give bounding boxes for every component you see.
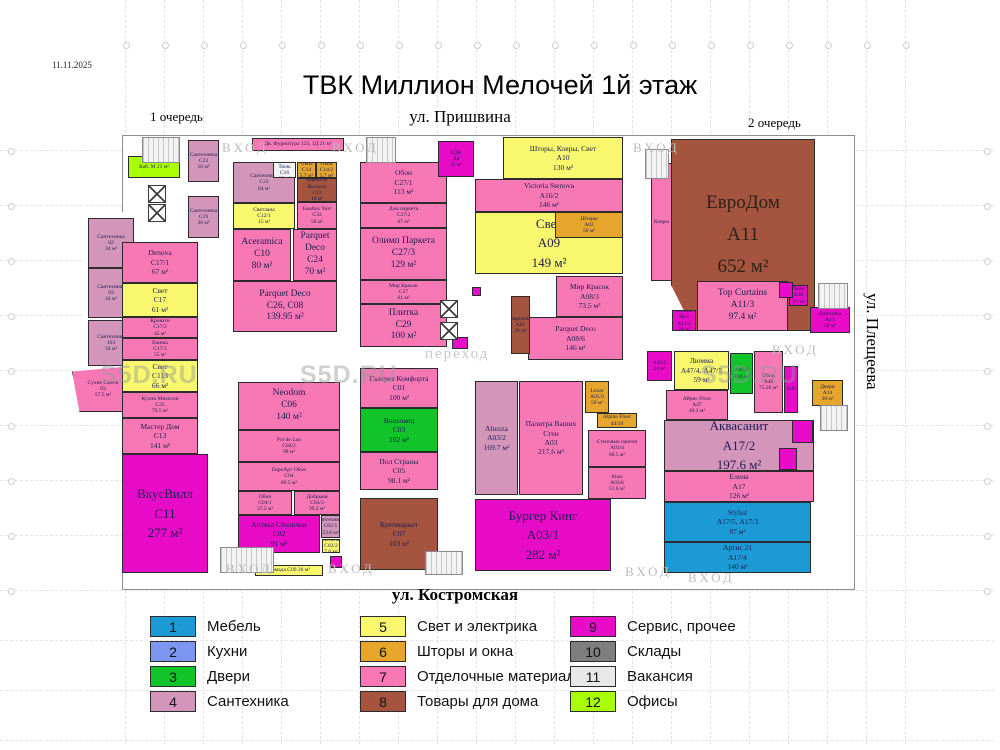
unit-С33: Бамбук УютС3358 м² <box>297 202 337 229</box>
unit-С16: Жал. ТюльС1612 м² <box>273 162 296 178</box>
legend-swatch-12: 12 <box>570 691 616 712</box>
unit-С04: ЕвроАрт ОбоиС0480.5 м² <box>238 462 340 491</box>
unit-label: А16/2 <box>540 191 559 200</box>
unit-label: А17/4 <box>728 553 747 562</box>
unit-label: 34 м² <box>105 346 117 352</box>
unit-С17/1: DenovaС17/167 м² <box>122 242 198 283</box>
unit-А03/2: AltezzaА03/2169.7 м² <box>475 381 518 495</box>
legend-swatch-5: 5 <box>360 616 406 637</box>
unit-label: 652 м² <box>718 251 769 283</box>
unit-label: 113 м² <box>394 187 414 196</box>
unit-label: Дв. Фурнитура 123, 1Д 21 м² <box>264 141 331 147</box>
unit-block <box>779 282 793 298</box>
phase-1-label: 1 очередь <box>150 109 203 125</box>
legend-label-2: Кухни <box>207 643 247 660</box>
unit-label: 139.95 м² <box>266 312 303 324</box>
unit-label: 57.5 м² <box>95 392 111 398</box>
unit-label: 98.1 м² <box>388 476 410 485</box>
legend-swatch-9: 9 <box>570 616 616 637</box>
street-label-right: ул. Плещеева <box>862 293 882 390</box>
unit-label: 45 м² <box>154 331 166 337</box>
unit-label: С29 <box>396 320 412 332</box>
unit-label: 50 м² <box>591 400 603 406</box>
legend-label-10: Склады <box>627 643 681 660</box>
unit-А02: ШторыА0250 м² <box>555 212 623 238</box>
unit-С27/1: ОбоиС27/1113 м² <box>360 162 447 203</box>
unit-label: 282 м² <box>526 545 561 565</box>
unit-label: 16 м² <box>197 164 209 170</box>
unit-label: 60.5 м² <box>609 452 625 458</box>
entrance-label: ВХОД <box>625 564 672 580</box>
unit-label: 129 м² <box>391 260 417 272</box>
unit-label: Палитра Ваших Стен <box>520 419 582 438</box>
unit-С10: AceramicaС1080 м² <box>233 229 291 281</box>
unit-24 м²: А43/524 м² <box>647 351 672 381</box>
legend-label-12: Офисы <box>627 693 678 710</box>
unit-label: Свет <box>152 286 167 295</box>
unit-С02/2: ЛенельС02/27.6 м² <box>322 539 340 553</box>
unit-С11: ВкусВиллС11277 м² <box>122 454 208 573</box>
unit-А47: Айрис FloorА4749.3 м² <box>666 390 728 420</box>
legend-label-3: Двери <box>207 668 250 685</box>
legend-label-9: Сервис, прочее <box>627 618 736 635</box>
unit-label: 87 м² <box>729 527 745 536</box>
unit-label: Каб. М 21 м² <box>139 164 169 170</box>
unit-label: 97.4 м² <box>729 312 757 324</box>
stairs <box>820 405 848 431</box>
unit-С27/2: Дом паркетаС27/267 м² <box>360 203 447 228</box>
unit-label: С10 <box>254 249 270 261</box>
unit-label: 149 м² <box>532 253 567 273</box>
unit-label: 169.7 м² <box>484 443 510 452</box>
unit-label: 197.6 м² <box>717 455 762 471</box>
unit-С04/2: Pol de LuxС04/298 м² <box>238 430 340 462</box>
unit-С17/2: КроватиС17/245 м² <box>122 317 198 338</box>
unit-label: 141 м² <box>150 441 170 450</box>
unit-label: Top Curtains <box>718 288 767 300</box>
unit-label: Жал. Тюль <box>274 162 295 170</box>
unit-label: Карнизы Жалюзи <box>298 178 336 190</box>
unit-А16/2: Victoria StenovaА16/2146 м² <box>475 179 623 212</box>
unit-А11/2: Гибкий ПолА11/228 м² <box>672 310 696 331</box>
unit-label: 50 м² <box>583 228 595 234</box>
unit-label: 67 м² <box>152 267 168 276</box>
unit-С19: СантехникаС1936 м² <box>188 196 219 238</box>
unit-block <box>472 287 481 296</box>
entrance-label: ВХОД <box>772 342 819 358</box>
unit-label: Parquet Deco <box>259 289 310 301</box>
unit-label: 26 м² <box>514 328 526 334</box>
unit-label: Мастер Дом <box>140 422 179 431</box>
watermark: S5D.RU <box>100 361 198 390</box>
elevator <box>440 300 458 318</box>
unit-label: А17 <box>733 482 746 491</box>
stairs <box>142 137 180 163</box>
unit-label: 34 м² <box>105 296 117 302</box>
unit-А11/3: Top CurtainsА11/397.4 м² <box>697 281 788 331</box>
unit-label: 64 м² <box>258 186 270 192</box>
unit-label: Altezza <box>485 424 508 433</box>
unit-label: 146 м² <box>539 200 559 209</box>
legend-label-8: Товары для дома <box>417 693 538 710</box>
legend-swatch-7: 7 <box>360 666 406 687</box>
unit-label: ВкусВилл <box>137 484 193 504</box>
legend-label-5: Свет и электрика <box>417 618 537 635</box>
unit-label: 146 м² <box>565 343 585 352</box>
unit-С23: СантехникаС2316 м² <box>188 140 219 182</box>
stairs <box>425 551 463 575</box>
phase-2-label: 2 очередь <box>748 115 801 131</box>
unit-label: 102 м² <box>389 435 409 444</box>
unit-label: 73.5 м² <box>579 301 601 310</box>
unit-С14/2: ОкнаС14/25.7 м² <box>316 162 337 178</box>
unit-label: С05 <box>393 466 406 475</box>
unit-label: Обои <box>395 168 412 177</box>
unit-label: 34 м² <box>105 246 117 252</box>
unit-label: 55 м² <box>154 352 166 358</box>
unit-label: 100 м² <box>391 331 417 343</box>
unit-А17/4: Артис 21А17/4140 м² <box>664 542 811 573</box>
unit-А01: КарнизыА0126 м² <box>511 296 530 354</box>
plan-date: 11.11.2025 <box>52 60 92 70</box>
street-label-bottom: ул. Костромская <box>355 585 555 605</box>
unit-block <box>779 448 797 470</box>
unit-label: 58 м² <box>311 219 323 225</box>
legend-label-6: Шторы и окна <box>417 643 513 660</box>
unit-label: 51.6 м² <box>609 486 625 492</box>
legend-swatch-6: 6 <box>360 641 406 662</box>
unit-label: 44/10 <box>611 421 624 427</box>
unit-С17: СветС1761 м² <box>122 283 198 317</box>
unit-label: Ковры <box>654 219 669 225</box>
unit-label: С24 <box>307 255 323 267</box>
unit-С04/1: ОбоиС04/137.5 м² <box>238 491 292 515</box>
unit-label: Елена <box>730 472 749 481</box>
unit-А14: ДвериА1438 м² <box>812 380 843 406</box>
unit-label: А03 <box>545 438 558 447</box>
elevator <box>440 322 458 340</box>
unit-label: Бургер Кинг <box>509 506 578 526</box>
legend-swatch-3: 3 <box>150 666 196 687</box>
unit-А03/1: Бургер КингА03/1282 м² <box>475 499 611 571</box>
unit-label: 33 м² <box>450 162 462 168</box>
unit-label: 28 м² <box>824 323 836 329</box>
unit-label: Мир Красок <box>570 282 609 291</box>
unit-label: С11 <box>154 504 175 524</box>
unit-label: 15 м² <box>258 219 270 225</box>
unit-label: Крепмаркет <box>380 520 418 529</box>
unit-label: 7.6 м² <box>324 549 337 553</box>
unit-label: С02 <box>273 529 286 538</box>
unit-label: 28 м² <box>678 327 690 331</box>
unit-С14: ОкнаС145.7 м² <box>297 162 316 178</box>
unit-А03/4: Стеновые панелиА03/460.5 м² <box>588 430 646 467</box>
unit-label: А08/6 <box>566 334 585 343</box>
entrance-label: ВХОД <box>688 570 735 586</box>
unit-С25: Кухни МизеллиС2579.5 м² <box>122 392 198 418</box>
unit-label: А03/1 <box>527 525 560 545</box>
unit-label: 49.3 м² <box>689 408 705 414</box>
unit-label: Aceramica <box>241 237 282 249</box>
unit-label: 277 м² <box>148 523 183 543</box>
unit-label: 103 м² <box>389 539 409 548</box>
unit-С29: ПлиткаС29100 м² <box>360 304 447 347</box>
unit-С12/1: СветланаС12/115 м² <box>233 203 295 229</box>
unit-block <box>792 420 813 443</box>
legend-label-7: Отделочные материалы <box>417 668 586 685</box>
unit-label: 126 м² <box>729 491 749 500</box>
unit-label: 80 м² <box>252 261 273 273</box>
unit-label: С26, С08 <box>267 301 303 313</box>
unit-label: Плитка <box>389 308 419 320</box>
unit-label: 80.5 м² <box>281 480 297 486</box>
unit-label: Шторы, Ковры, Свет <box>530 144 597 153</box>
unit-label: 17 м² <box>792 299 804 305</box>
unit-label: 12 м² <box>278 176 290 178</box>
entrance-label: ВХОД <box>222 140 269 156</box>
unit-С04/3: ДобрыняС04/339.2 м² <box>294 491 340 515</box>
unit-label: 61 м² <box>152 305 168 314</box>
elevator <box>148 185 166 203</box>
unit-label: Гибкий Пол <box>673 310 695 321</box>
unit-label: Parquet Deco <box>555 324 596 333</box>
unit-label: 100 м² <box>389 393 409 402</box>
page-title: ТВК Миллион Мелочей 1й этаж <box>0 70 1000 101</box>
entrance-label: ВХОД <box>332 140 379 156</box>
unit-label: Victoria Stenova <box>524 181 574 190</box>
unit-С27/3: Олимп ПаркетаС27/3129 м² <box>360 228 447 280</box>
unit-label: ЕвроДом <box>706 187 780 219</box>
legend-swatch-1: 1 <box>150 616 196 637</box>
unit-А08/6: Parquet DecoА08/6146 м² <box>528 317 623 360</box>
unit-label: 140 м² <box>276 412 302 424</box>
unit-С26, С08: Parquet DecoС26, С08139.95 м² <box>233 281 337 332</box>
unit-label: 98 м² <box>283 449 295 455</box>
unit-А10: Шторы, Ковры, СветА10130 м² <box>503 137 623 179</box>
unit-Ковры: Ковры <box>651 163 672 281</box>
unit-С13: Мастер ДомС13141 м² <box>122 418 198 454</box>
unit-А13: ДомотекаА1328 м² <box>810 307 850 333</box>
legend-label-1: Мебель <box>207 618 261 635</box>
legend-swatch-4: 4 <box>150 691 196 712</box>
entrance-label: ВХОД <box>633 140 680 156</box>
unit-label: С27/3 <box>392 248 415 260</box>
unit-label: С17 <box>154 295 167 304</box>
legend-swatch-8: 8 <box>360 691 406 712</box>
unit-А08/3: Мир КрасокА08/373.5 м² <box>556 276 623 317</box>
unit-С17/3: ВанныС17/355 м² <box>122 338 198 360</box>
floor-plan-page: 11.11.2025 ТВК Миллион Мелочей 1й этаж у… <box>0 0 1000 750</box>
unit-label: 37.5 м² <box>257 506 273 512</box>
unit-label: 70 м² <box>305 267 326 279</box>
unit-44/10: Alpine Floor44/10 <box>597 413 637 428</box>
unit-А17/5, А17/3: StylistА17/5, А17/387 м² <box>664 502 811 542</box>
unit-А17: ЕленаА17126 м² <box>664 471 814 502</box>
elevator <box>148 204 166 222</box>
unit-label: 36 м² <box>197 220 209 226</box>
legend-swatch-11: 11 <box>570 666 616 687</box>
unit-С27: Мир КрасокС2761 м² <box>360 280 447 304</box>
unit-label: Denova <box>148 248 171 257</box>
unit-label: Помада С09 26 м² <box>268 567 310 573</box>
unit-label: 23.6 м² <box>322 530 338 536</box>
unit-С12: Карнизы ЖалюзиС1218 м² <box>297 178 337 202</box>
unit-label: 61 м² <box>397 295 409 301</box>
unit-Дв: СДКДв33 м² <box>438 141 474 177</box>
unit-С02/1: СантехникаС02/123.6 м² <box>321 515 340 538</box>
unit-А05/3: LuxarА05/350 м² <box>585 381 609 413</box>
legend-label-11: Вакансия <box>627 668 693 685</box>
unit-label: Олимп Паркета <box>372 236 435 248</box>
unit-label: 39.2 м² <box>309 506 325 512</box>
unit-label: А08/3 <box>580 292 599 301</box>
unit-label: Волховец <box>384 416 414 425</box>
unit-label: С07 <box>393 529 406 538</box>
unit-label: 130 м² <box>553 163 573 172</box>
unit-label: С17/1 <box>151 258 169 267</box>
unit-label: С13 <box>154 431 167 440</box>
unit-label: Пол Страны <box>379 457 418 466</box>
entrance-label: ВХОД <box>328 561 375 577</box>
unit-label: Артис 21 <box>723 543 752 552</box>
unit-С03: ВолховецС03102 м² <box>360 408 438 452</box>
watermark: S5D.RU <box>300 361 398 390</box>
unit-label: А17/5, А17/3 <box>717 517 758 526</box>
stairs <box>818 283 848 309</box>
unit-label: А03/2 <box>487 433 506 442</box>
unit-label: С03 <box>393 425 406 434</box>
unit-label: 79.5 м² <box>152 408 168 414</box>
unit-А03: Палитра Ваших СтенА03217.6 м² <box>519 381 583 495</box>
unit-label: 67 м² <box>397 219 409 225</box>
watermark: S5D.RU <box>700 361 798 390</box>
unit-label: А11 <box>727 219 759 251</box>
legend-swatch-10: 10 <box>570 641 616 662</box>
unit-С24: Parquet DecoС2470 м² <box>293 229 337 281</box>
unit-label: 24 м² <box>653 366 665 372</box>
unit-label: С06 <box>281 400 297 412</box>
legend-swatch-2: 2 <box>150 641 196 662</box>
unit-label: Аквасанит <box>710 420 769 436</box>
unit-label: Parquet Deco <box>294 231 336 255</box>
unit-label: Аптека Столички <box>251 520 307 529</box>
unit-label: Stylist <box>728 508 747 517</box>
legend-label-4: Сантехника <box>207 693 289 710</box>
entrance-label: ВХОД <box>226 561 273 577</box>
unit-label: 38 м² <box>821 396 833 402</box>
unit-С05: Пол СтраныС0598.1 м² <box>360 452 438 490</box>
unit-label: С27/1 <box>394 178 412 187</box>
unit-label: А10 <box>557 153 570 162</box>
unit-label: 217.6 м² <box>538 447 564 456</box>
unit-label: А17/2 <box>723 436 756 456</box>
unit-label: А11/3 <box>731 300 754 312</box>
transition-label: переход <box>425 346 489 363</box>
unit-А03/6: AlarcА03/651.6 м² <box>588 467 646 499</box>
